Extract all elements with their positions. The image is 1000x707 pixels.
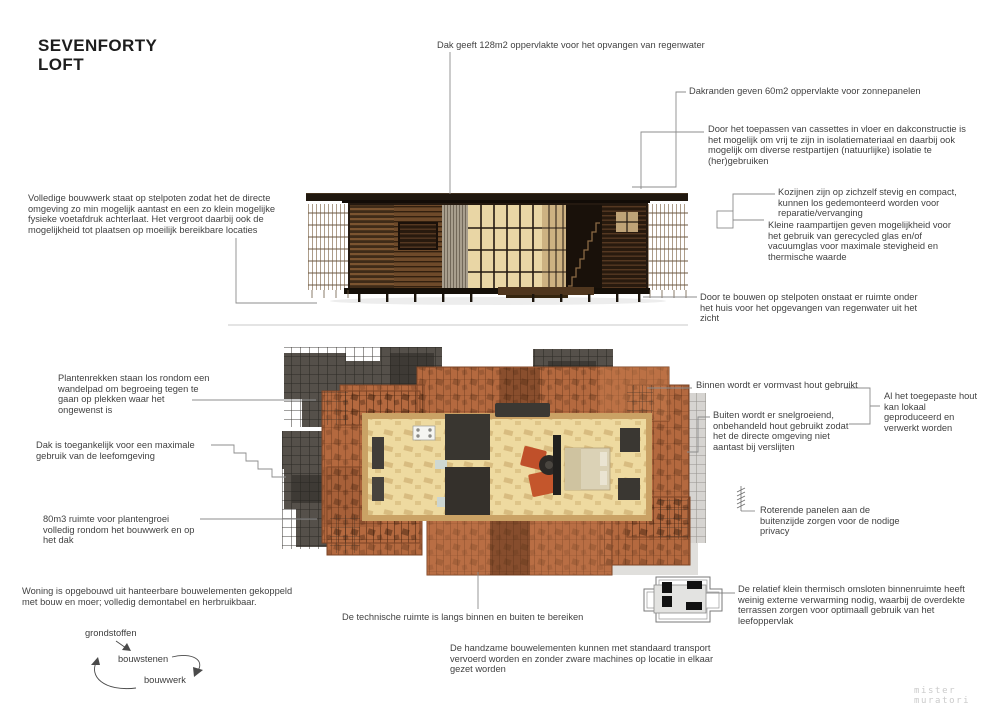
window-frame-icon (717, 211, 733, 228)
leader-frames (733, 194, 775, 211)
page-title: SEVENFORTY LOFT (38, 36, 157, 74)
plan-render (282, 347, 707, 579)
annotation-stilts-rainwater: Door te bouwen op stelpoten onstaat er r… (700, 292, 920, 324)
thermal-floorplan-icon (644, 577, 722, 622)
cycle-node-bouwwerk: bouwwerk (144, 675, 186, 685)
annotation-thermal: De relatief klein thermisch omsloten bin… (738, 584, 990, 626)
annotation-small-windows: Kleine raampartijen geven mogelijkheid v… (768, 220, 963, 262)
annotation-interior-wood: Binnen wordt er vormvast hout gebruikt (696, 380, 858, 391)
annotation-plant-volume: 80m3 ruimte voor plantengroei volledig r… (43, 514, 197, 546)
plan-svg (282, 347, 707, 579)
cycle-node-grondstoffen: grondstoffen (85, 628, 137, 638)
leader-roof-access (211, 445, 286, 477)
annotation-rotating-panels: Roterende panelen aan de buitenzijde zor… (760, 505, 908, 537)
title-line-2: LOFT (38, 55, 157, 74)
annotation-solar-edges: Dakranden geven 60m2 oppervlakte voor zo… (689, 86, 921, 97)
annotation-demountable: Woning is opgebouwd uit hanteerbare bouw… (22, 586, 306, 607)
hinged-panel-strip-icon (737, 486, 745, 511)
title-line-1: SEVENFORTY (38, 36, 157, 55)
watermark: mister muratori (914, 686, 1000, 706)
annotation-stilts-footprint: Volledige bouwwerk staat op stelpoten zo… (28, 193, 290, 235)
page: SEVENFORTY LOFT (0, 0, 1000, 707)
elevation-svg (300, 188, 695, 312)
annotation-transport: De handzame bouwelementen kunnen met sta… (450, 643, 736, 675)
annotation-roof-access: Dak is toegankelijk voor een maximale ge… (36, 440, 218, 461)
annotation-roof-rainwater: Dak geeft 128m2 oppervlakte voor het opv… (437, 40, 705, 51)
annotation-local-wood: Al het toegepaste hout kan lokaal geprod… (884, 391, 982, 433)
leader-solar-edges (632, 92, 686, 187)
cycle-node-bouwstenen: bouwstenen (118, 654, 168, 664)
annotation-exterior-wood: Buiten wordt er snelgroeiend, onbehandel… (713, 410, 855, 452)
annotation-technical-room: De technische ruimte is langs binnen en … (342, 612, 583, 623)
annotation-cassettes: Door het toepassen van cassettes in vloe… (708, 124, 976, 166)
leader-cassettes (641, 132, 704, 189)
annotation-frames: Kozijnen zijn op zichzelf stevig en comp… (778, 187, 983, 219)
elevation-render (300, 188, 695, 312)
annotation-plant-racks: Plantenrekken staan los rondom een wande… (58, 373, 210, 415)
